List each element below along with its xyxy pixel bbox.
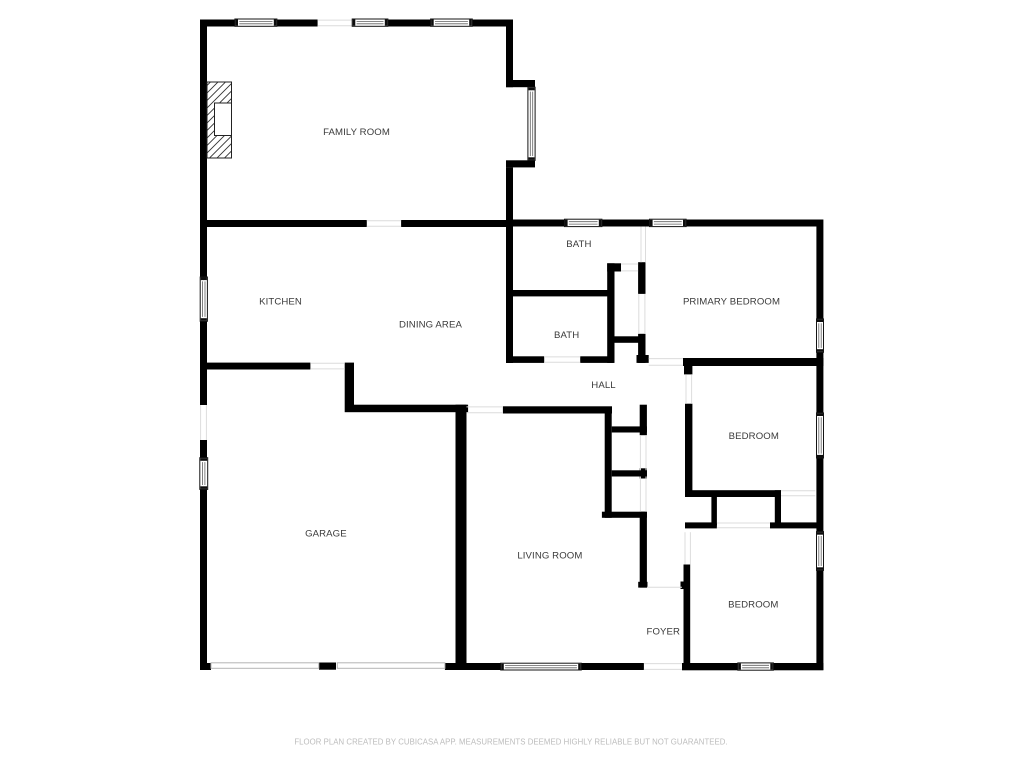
svg-text:PRIMARY BEDROOM: PRIMARY BEDROOM: [683, 296, 780, 307]
svg-text:BEDROOM: BEDROOM: [729, 431, 779, 442]
svg-text:FOYER: FOYER: [647, 627, 681, 638]
svg-text:FAMILY ROOM: FAMILY ROOM: [323, 127, 390, 138]
svg-text:DINING AREA: DINING AREA: [399, 320, 462, 331]
svg-text:FLOOR PLAN CREATED BY CUBICASA: FLOOR PLAN CREATED BY CUBICASA APP. MEAS…: [294, 738, 727, 747]
svg-text:LIVING ROOM: LIVING ROOM: [517, 550, 582, 561]
svg-text:KITCHEN: KITCHEN: [259, 296, 302, 307]
svg-text:HALL: HALL: [591, 380, 616, 391]
svg-text:GARAGE: GARAGE: [305, 529, 347, 540]
svg-text:BATH: BATH: [566, 239, 591, 250]
svg-text:BEDROOM: BEDROOM: [728, 600, 778, 611]
svg-text:BATH: BATH: [554, 330, 579, 341]
